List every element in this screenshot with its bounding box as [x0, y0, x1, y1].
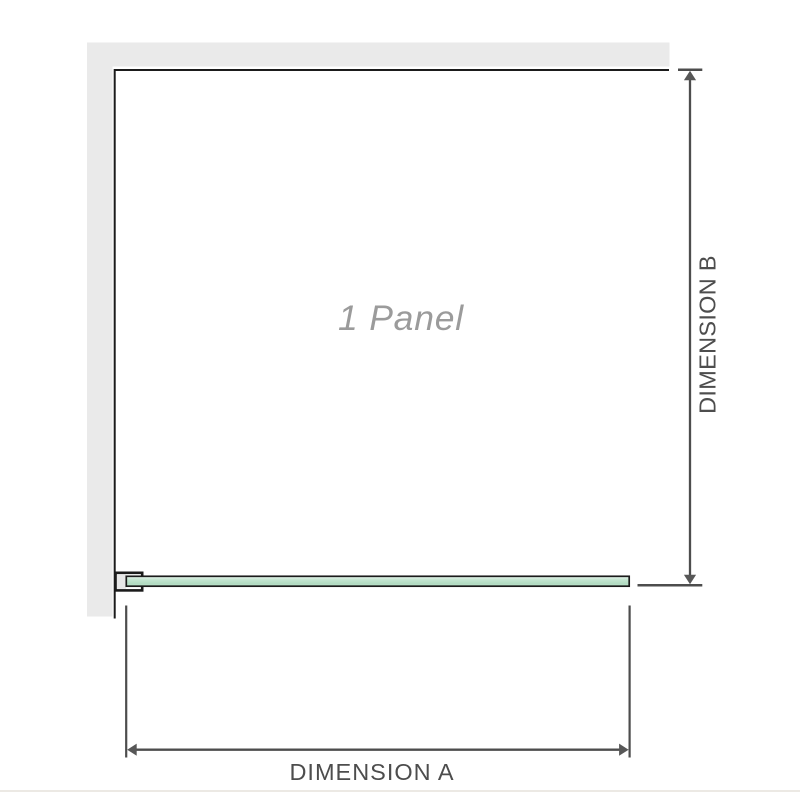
svg-text:DIMENSION B: DIMENSION B — [695, 255, 721, 414]
svg-text:DIMENSION A: DIMENSION A — [289, 759, 454, 785]
svg-text:1 Panel: 1 Panel — [338, 298, 464, 338]
